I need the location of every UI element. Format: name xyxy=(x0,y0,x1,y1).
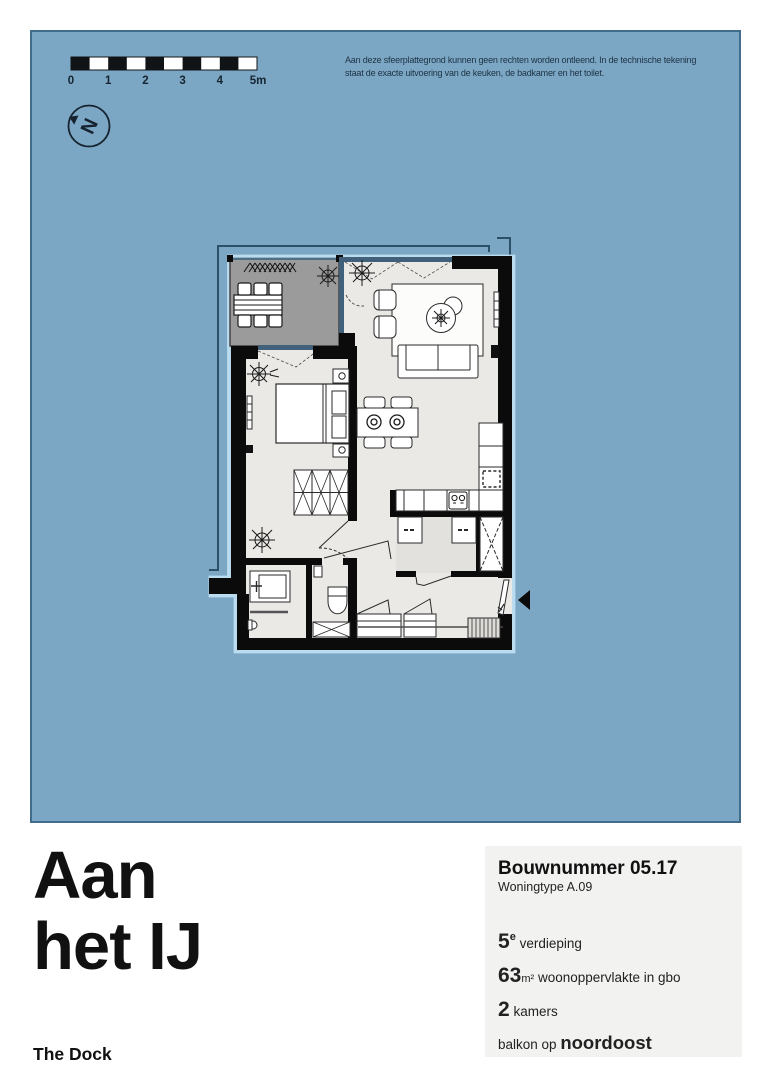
svg-text:N: N xyxy=(77,115,103,137)
svg-text:3: 3 xyxy=(179,75,185,87)
svg-text:4: 4 xyxy=(217,75,224,87)
svg-text:1: 1 xyxy=(105,75,112,87)
svg-text:5m: 5m xyxy=(250,75,267,87)
svg-text:0: 0 xyxy=(68,75,74,87)
svg-text:2: 2 xyxy=(142,75,148,87)
